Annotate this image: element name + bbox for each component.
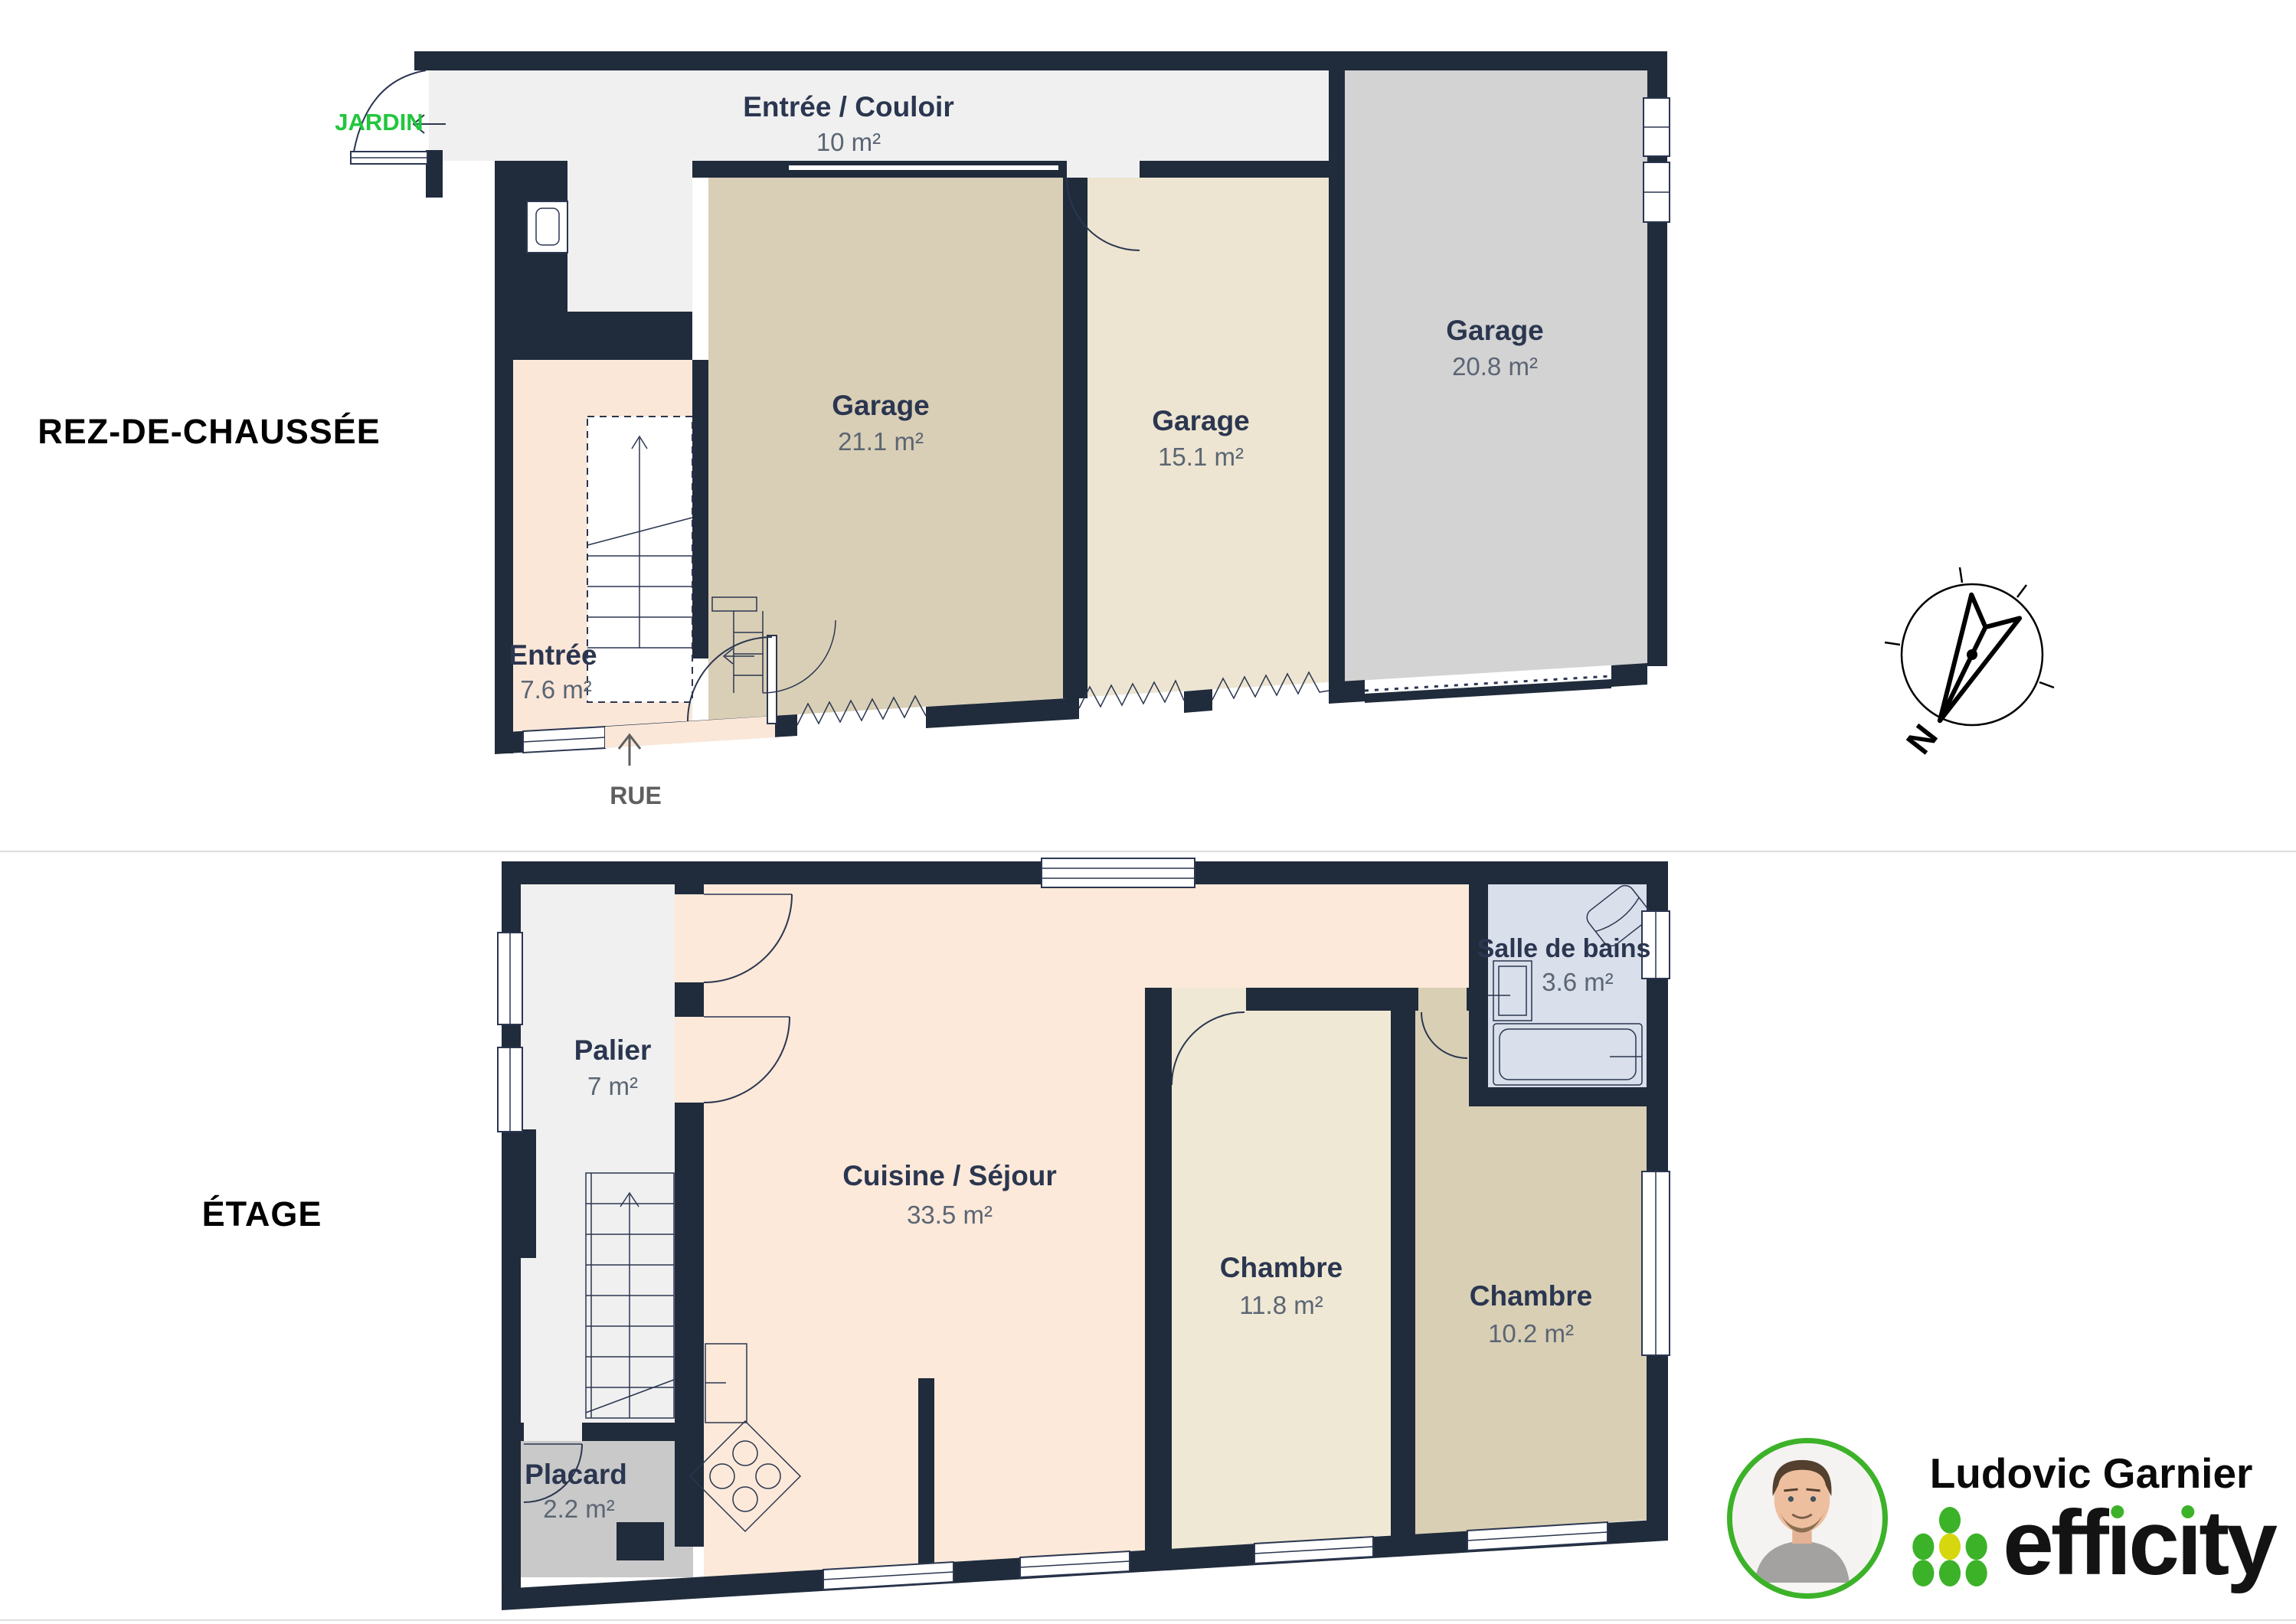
room-corridor-left xyxy=(567,161,692,312)
door-gap xyxy=(1067,161,1140,178)
window-marker xyxy=(1042,858,1195,887)
floor-title-ground: REZ-DE-CHAUSSÉE xyxy=(37,412,381,452)
compass-rose: N xyxy=(1885,567,2054,761)
agent-avatar xyxy=(1727,1438,1888,1599)
bottom-border xyxy=(0,1619,2296,1621)
room-garage-15 xyxy=(1087,178,1329,697)
staircase-icon xyxy=(587,417,692,702)
room-area: 33.5 m² xyxy=(907,1201,993,1229)
room-area: 7 m² xyxy=(587,1072,638,1100)
room-area: 10 m² xyxy=(816,128,881,156)
branding-block: Ludovic Garnier effıcıty xyxy=(1727,1438,2275,1599)
door-gap xyxy=(675,894,704,982)
room-label: Chambre xyxy=(1220,1252,1343,1283)
room-area: 15.1 m² xyxy=(1158,443,1244,471)
room-label: Garage xyxy=(1446,315,1544,346)
room-label: Entrée xyxy=(509,639,597,671)
room-area: 7.6 m² xyxy=(520,675,592,704)
door-gap xyxy=(1172,988,1246,1011)
door-leaf xyxy=(767,636,777,724)
room-label: Chambre xyxy=(1470,1280,1592,1312)
room-label: Palier xyxy=(574,1034,652,1066)
room-label: Salle de bains xyxy=(1477,934,1651,963)
room-area: 10.2 m² xyxy=(1488,1319,1574,1348)
door-gap xyxy=(1418,988,1467,1011)
panel-divider xyxy=(0,851,2296,852)
efficity-logo-dots-icon xyxy=(1908,1507,1992,1586)
door-gap xyxy=(675,1017,704,1103)
room-area: 3.6 m² xyxy=(1542,968,1614,996)
avatar-photo xyxy=(1732,1443,1872,1583)
room-area: 2.2 m² xyxy=(543,1495,615,1523)
room-label: Placard xyxy=(525,1459,627,1490)
room-area: 20.8 m² xyxy=(1452,352,1538,381)
room-label: Cuisine / Séjour xyxy=(842,1160,1057,1191)
jardin-label: JARDIN xyxy=(335,109,423,136)
room-label: Entrée / Couloir xyxy=(743,91,953,123)
north-label: N xyxy=(1899,717,1945,761)
floor-title-upper: ÉTAGE xyxy=(147,1194,377,1234)
room-area: 21.1 m² xyxy=(838,427,924,456)
efficity-logo-text: effıcıty xyxy=(2003,1499,2275,1586)
glazed-partition xyxy=(789,165,1058,170)
floorplan-page: JARDIN xyxy=(0,0,2296,1624)
room-area: 11.8 m² xyxy=(1239,1291,1323,1319)
door-gap xyxy=(524,1423,582,1441)
room-label: Garage xyxy=(832,390,930,421)
agent-name: Ludovic Garnier xyxy=(1930,1450,2253,1497)
room-label: Garage xyxy=(1152,405,1250,436)
rue-label: RUE xyxy=(610,782,662,809)
